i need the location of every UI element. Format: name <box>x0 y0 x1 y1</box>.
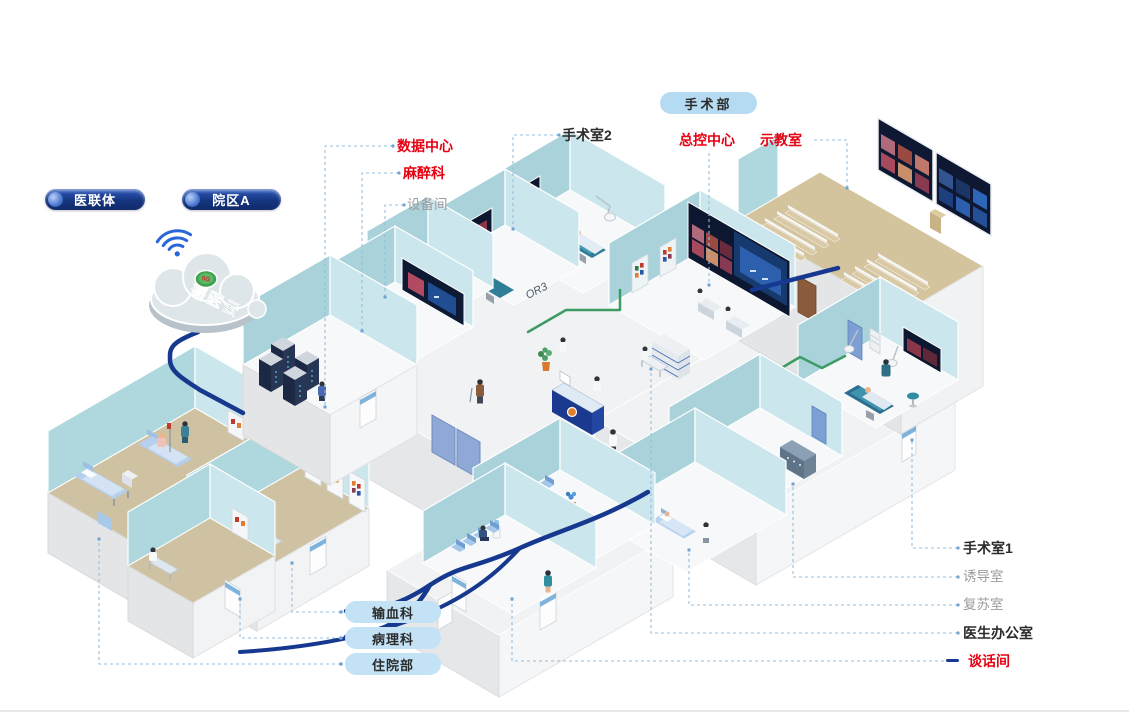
operator <box>725 307 732 321</box>
callout-demo-room: 示教室 <box>760 133 802 147</box>
callout-induction-room: 诱导室 <box>963 570 1004 584</box>
callout-anesthesia: 麻醉科 <box>403 166 445 180</box>
callout-equipment-room: 设备间 <box>407 198 448 212</box>
nurse-walking <box>560 337 567 352</box>
callout-or2: 手术室2 <box>562 128 612 142</box>
office-person <box>642 347 649 361</box>
isometric-scene: OR2 OR3 <box>0 0 1129 721</box>
badge-inpatient-dept: 住院部 <box>345 653 441 675</box>
5g-badge: 5G <box>195 271 217 288</box>
badge-pathology: 病理科 <box>345 627 441 649</box>
callout-recovery-room: 复苏室 <box>963 598 1004 612</box>
talk-room-dash <box>946 659 959 662</box>
callout-or1: 手术室1 <box>963 541 1013 555</box>
hospital-isometric-diagram: OR2 OR3 <box>0 0 1129 721</box>
callout-data-center: 数据中心 <box>397 139 453 153</box>
wifi-icon <box>156 228 195 260</box>
operator <box>697 289 704 303</box>
badge-medical-alliance: 医联体 <box>45 189 145 210</box>
badge-blood-transfusion: 输血科 <box>345 601 441 623</box>
badge-surgery-dept: 手术部 <box>660 92 757 114</box>
callout-doctor-office: 医生办公室 <box>963 626 1033 640</box>
page-bottom-rule <box>0 710 1129 712</box>
data-center-room <box>243 255 417 485</box>
badge-campus-a: 院区A <box>182 189 281 210</box>
callout-talk-room: 谈话间 <box>968 654 1010 668</box>
cloud-platform: 德医云 5G <box>149 253 266 333</box>
podium <box>930 209 946 234</box>
callout-master-control: 总控中心 <box>679 133 735 147</box>
